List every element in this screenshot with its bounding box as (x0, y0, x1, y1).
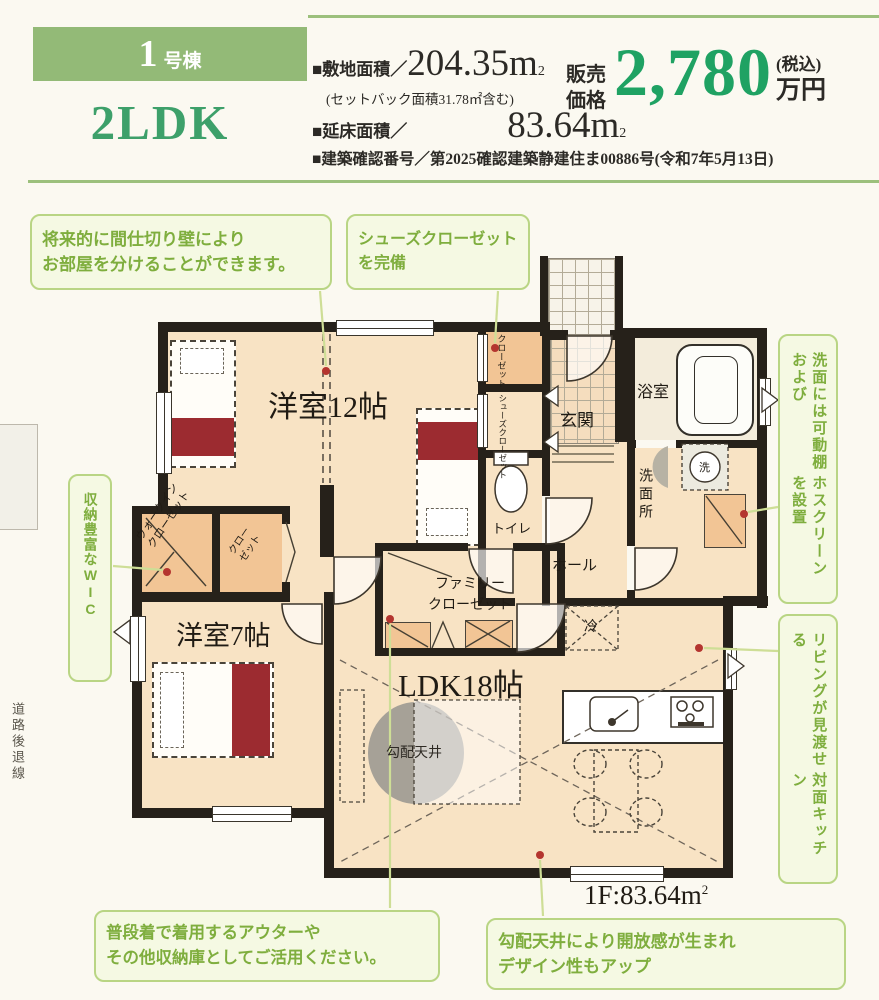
room-label-western12: 洋室12帖 (268, 382, 388, 426)
floorplan-linework (0, 0, 879, 1000)
washing-machine-icon (653, 444, 728, 490)
callout-shoes-closet: シューズクローゼット を完備 (346, 214, 530, 290)
road-setback-label: 道路後退線 (8, 702, 27, 782)
room-label-toilet: トイレ (492, 518, 531, 537)
room-label-shoes-closet: シューズクローゼット (496, 394, 509, 450)
first-floor-area: 1F:83.64m2 (584, 880, 708, 911)
genkan-steps (552, 446, 614, 462)
callout-kitchen: リビングが見渡せる 対面キッチン (778, 614, 838, 884)
room-label-bath: 浴室 (637, 378, 669, 402)
room-label-western7: 洋室7帖 (176, 614, 271, 653)
callout-partition: 将来的に間仕切り壁により お部屋を分けることができます。 (30, 214, 332, 290)
dining-set (574, 750, 662, 832)
kitchen-sink-icon (590, 697, 638, 731)
room-label-genkan: 玄関 (560, 406, 594, 431)
callout-slope-ceiling: 勾配天井により開放感が生まれ デザイン性もアップ (486, 918, 846, 990)
room-label-top-closet: クローゼット (494, 334, 508, 384)
slope-ceiling-label: 勾配天井 (386, 742, 442, 762)
room-label-ldk: LDK18帖 (398, 660, 524, 705)
callout-outerwear: 普段着で着用するアウターや その他収納庫としてご活用ください。 (94, 910, 440, 982)
fridge-label: 冷 (584, 616, 598, 636)
callout-washroom: 洗面には可動棚および ホスクリーンを設置 (778, 334, 838, 604)
washer-label: 洗 (699, 459, 710, 475)
callout-wic: 収納豊富なWIC (68, 474, 112, 682)
room-label-family-closet: ファミリー クローゼット (383, 574, 557, 616)
stove-icon (671, 697, 713, 727)
room-label-hall: ホール (552, 554, 597, 575)
room-label-washroom: 洗面所 (634, 468, 654, 552)
